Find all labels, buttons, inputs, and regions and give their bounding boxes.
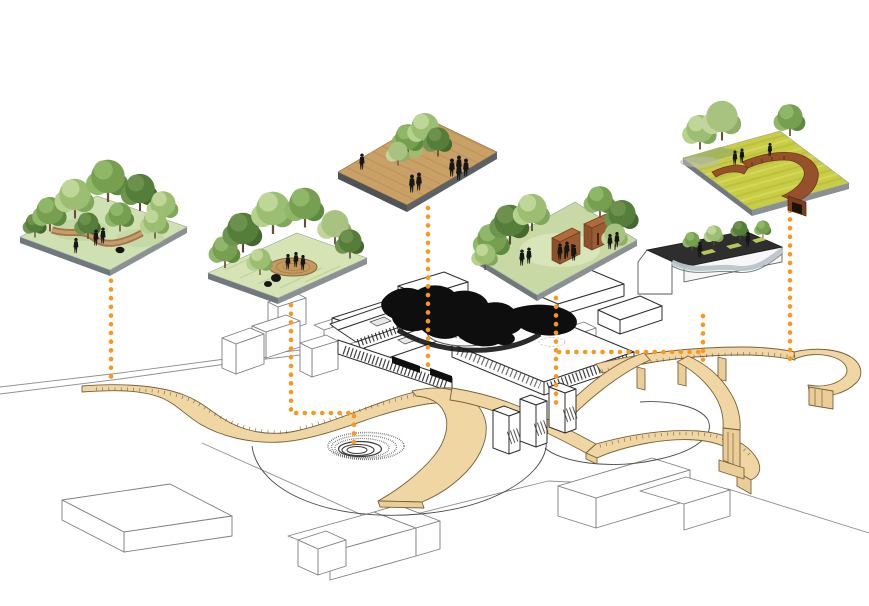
access-road: [0, 344, 352, 394]
tower-volumes: [493, 383, 576, 454]
site-boundary-lines: [202, 443, 869, 533]
tower-1: [493, 406, 520, 454]
site-axonometric-diagram: [0, 0, 869, 606]
person-icon: [116, 247, 125, 253]
context-building-south: [288, 505, 440, 580]
tower-2: [520, 395, 547, 447]
person-icon: [264, 281, 272, 287]
path-network: [82, 347, 861, 508]
context-buildings: [62, 458, 730, 580]
ground-path-west: [82, 385, 452, 443]
vignette-forest-walk-garden: [20, 160, 187, 276]
tower-3: [549, 383, 576, 433]
spiral-amphitheater: [328, 433, 404, 460]
vignette-meadow-corten-ramp: [676, 101, 869, 216]
elevated-walkway: [552, 347, 861, 479]
vignette-meadow-deck-garden: [208, 188, 367, 304]
person-icon: [271, 274, 281, 282]
diagram-canvas: [0, 0, 869, 606]
context-building-southwest: [62, 484, 232, 552]
tree-icon: [754, 221, 771, 238]
vignette-rooftop-garden: [638, 221, 782, 294]
context-building-southeast: [558, 458, 730, 530]
